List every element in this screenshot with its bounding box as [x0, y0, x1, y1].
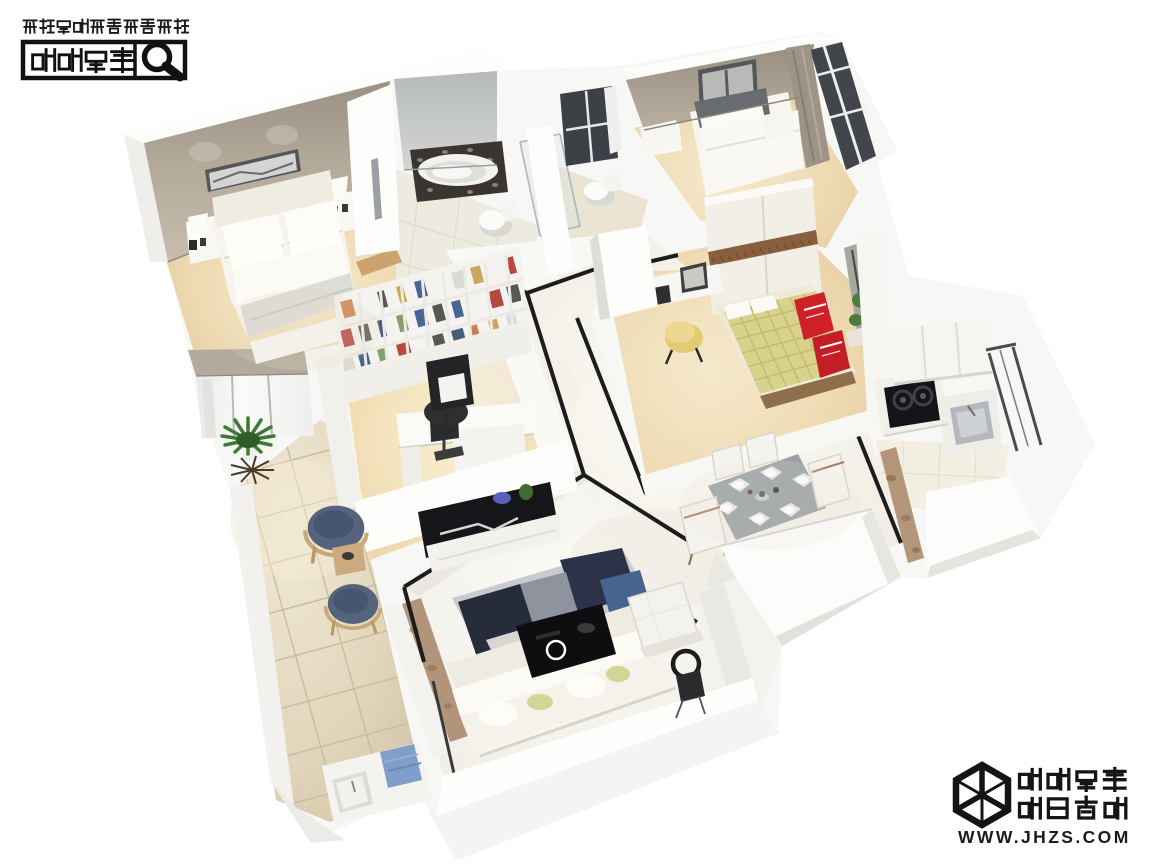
- svg-text:WWW.JHZS.COM: WWW.JHZS.COM: [958, 827, 1131, 847]
